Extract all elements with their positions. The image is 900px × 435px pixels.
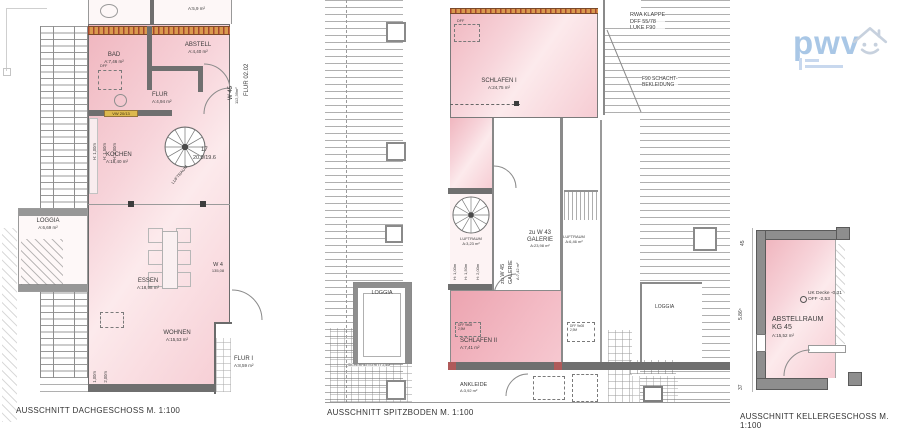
room-label-schlafen1: SCHLAFEN I A:24,75 m²: [474, 78, 524, 91]
room-name: LOGGIA: [36, 218, 59, 224]
wall-bottom: [88, 384, 216, 392]
room-area: A:8,59 m²: [234, 363, 254, 368]
room-label-flur: FLUR A:4,94 m²: [152, 92, 172, 105]
dff-dashed: [454, 24, 480, 42]
dim-line: [752, 228, 753, 392]
door-arc: [506, 374, 528, 396]
rwa-line: DFF 55/78: [630, 19, 656, 25]
luftraum-area: A:3,23 m²: [452, 242, 490, 247]
height-dim: H: 2,00m: [112, 126, 117, 160]
keller-column: [848, 372, 862, 386]
stair-dimension: 20.0/19.6: [193, 155, 216, 162]
chair: [148, 250, 163, 265]
room-area: A:24,75 m²: [474, 85, 524, 90]
room-label-loggia-mid: LOGGIA: [356, 290, 408, 297]
dff-box-tag: DFF 9x08 2,9M: [458, 324, 472, 332]
gal43-line: zu W 43: [529, 230, 551, 236]
spiral-stair: [452, 196, 490, 234]
gal43-area: A:23,98 m²: [520, 244, 560, 249]
insulated-wall-band: [88, 26, 230, 35]
keller-wall-top: [756, 230, 844, 240]
room-label-wohnen: WOHNEN A:15,53 m²: [152, 330, 202, 343]
post: [128, 201, 134, 207]
room-label-loggia: LOGGIA A:6,69 m²: [24, 218, 72, 231]
chair: [176, 228, 191, 243]
room-area: A:4,40 m²: [176, 49, 220, 54]
door-arc: [232, 290, 262, 320]
caption-kellergeschoss: AUSSCHNITT KELLERGESCHOSS M. 1:100: [740, 412, 900, 430]
height-dim: H: 1,00m: [92, 354, 97, 388]
stair-number: 17: [201, 147, 208, 154]
room-label-flur1: FLUR I A:8,59 m²: [234, 356, 254, 369]
rwa-line: LUKE F90: [630, 25, 655, 31]
floorplan-sheet: A:5,9 m² BAD A:7,46 m² DFF ABSTELL A:4,4…: [0, 0, 900, 435]
room-name: ESSEN: [138, 278, 158, 284]
wall: [198, 66, 203, 92]
wall-bad-flur: [147, 26, 152, 90]
rwa-line: RWA KLAPPE: [630, 12, 665, 18]
wall-band-top: [450, 8, 598, 14]
luftraum-area: A:6,46 m²: [558, 240, 590, 245]
shower-dashed: [98, 70, 122, 90]
off-level: OFF -2,53: [808, 297, 830, 302]
wall-accent: [448, 362, 456, 370]
loggia-wall: [19, 209, 87, 216]
wardrobe-dashed: [572, 374, 598, 402]
room-area: A:18,98 m²: [128, 285, 168, 290]
dim-label: 5.86⁵: [738, 296, 744, 320]
room-name: FLUR I: [234, 356, 253, 362]
height-dim: H: 2,00m: [103, 354, 108, 388]
post: [514, 101, 519, 106]
logo-tagline-line: [805, 65, 843, 68]
chair: [176, 272, 191, 287]
glass-line: [88, 204, 230, 205]
room-name: SCHLAFEN I: [481, 78, 516, 84]
post: [200, 201, 206, 207]
door-arc: [204, 88, 230, 114]
room-label-kochen: KOCHEN A:18,40 m²: [106, 152, 132, 165]
keller-wall-left: [756, 230, 766, 390]
dff-tag: DFF: [100, 64, 107, 69]
door-arc: [204, 64, 230, 90]
uk-decke: UK Decke -0,31: [808, 291, 842, 296]
room-area: A:6,69 m²: [24, 225, 72, 230]
height-dim: H: 1,00m: [92, 126, 97, 160]
room-area: A:18,40 m²: [106, 159, 132, 164]
flur1-hatch: [216, 338, 231, 392]
gal43-line: GALERIE: [527, 237, 553, 243]
skylight: [386, 22, 406, 42]
wall-line: [600, 120, 602, 366]
room-area: A:3,92 m²: [460, 389, 487, 394]
unit-area-w45: 112,39m²: [235, 52, 240, 104]
skylight: [386, 142, 406, 161]
loggia-inner: [363, 293, 401, 357]
dim-label: 37: [738, 374, 744, 390]
fixture-oval: [100, 4, 118, 18]
keller-wall-top-notch: [836, 227, 850, 240]
room-label-abstellraum: ABSTELLRAUM KG 45 A:15,52 m²: [772, 316, 823, 338]
keller-wall-bottom: [756, 378, 828, 390]
loggia-right-room: [640, 282, 702, 362]
height-dim: H: 1,00m: [453, 252, 458, 280]
wall-bottom-band: [448, 362, 730, 370]
edge-hatch-strip: [2, 228, 17, 422]
room-label-abstell: ABSTELL A:4,40 m²: [176, 42, 220, 55]
chair: [176, 250, 191, 265]
logo-tagline-bar: [799, 58, 802, 70]
ladder-rail: [53, 26, 54, 378]
room-area: A:15,52 m²: [772, 333, 823, 338]
gal45-label: zu W 45: [500, 228, 507, 284]
room-name: KOCHEN: [106, 152, 132, 158]
vw-badge: VW 20/13: [104, 110, 138, 117]
loggia-wall: [354, 283, 411, 288]
room-area: A:4,94 m²: [152, 99, 172, 104]
room-name: ABSTELLRAUM: [772, 316, 823, 323]
terrace-square: [643, 386, 663, 402]
boundary-marker: [3, 68, 11, 76]
height-dim: H: 2,00m: [476, 252, 481, 280]
gal43-label: zu W 43 GALERIE A:23,98 m²: [520, 230, 560, 249]
room-name: FLUR: [152, 92, 168, 98]
room-area-top: A:5,9 m²: [188, 6, 205, 11]
luftraum1-label: LUFTRAUM A:3,23 m²: [452, 237, 490, 247]
room-name: ABSTELL: [185, 42, 211, 48]
room-label-essen: ESSEN A:18,98 m²: [128, 278, 168, 291]
caption-dachgeschoss: AUSSCHNITT DACHGESCHOSS M. 1:100: [16, 406, 180, 415]
caption-spitzboden: AUSSCHNITT SPITZBODEN M. 1:100: [327, 408, 474, 417]
door-arc: [784, 350, 810, 376]
dff-box-tag: DFF 9x08 2,9M: [570, 325, 584, 333]
door-arc: [494, 166, 516, 188]
stair-straight: [564, 190, 598, 220]
pwv-house-icon: [852, 26, 888, 60]
wall: [152, 66, 202, 71]
wall: [150, 0, 154, 26]
luftraum2-label: LUFTRAUM A:6,46 m²: [558, 235, 590, 245]
f90-line: BEKLEIDUNG: [642, 82, 674, 88]
keller-window-niche: [756, 334, 766, 352]
unit-label-w4: W 4 135,08: [206, 262, 230, 273]
unit-area: 135,08: [206, 269, 230, 274]
room-area: A:7,41 m²: [460, 345, 497, 350]
skylight: [693, 227, 717, 251]
keller-step: [808, 345, 846, 353]
dff-dashed: [100, 312, 124, 328]
room-name: BAD: [108, 52, 120, 58]
skylight: [386, 380, 406, 400]
level-note: UK Decke -0,31 OFF -2,53: [808, 291, 842, 303]
rwa-note: RWA KLAPPE DFF 55/78 LUKE F90: [630, 12, 665, 32]
dim-label: 45: [740, 230, 746, 246]
room-label-loggia-right: LOGGIA: [655, 304, 674, 310]
room-label-bad: BAD A:7,46 m²: [96, 52, 132, 65]
skylight: [385, 225, 403, 243]
room-area: A:15,53 m²: [152, 337, 202, 342]
room-name: SCHLAFEN II: [460, 338, 497, 344]
chair: [148, 228, 163, 243]
room-label-schlafen2: SCHLAFEN II A:7,41 m²: [460, 338, 497, 351]
dff-dashed: DFF 9x08 2,9M: [567, 322, 595, 342]
logo-tagline-line: [805, 59, 819, 62]
room-label-ankleide: ANKLEIDE A:3,92 m²: [460, 382, 487, 393]
plan2-bottom-line: [325, 402, 730, 403]
corridor-label: FLUR 02.02: [244, 44, 251, 96]
room-name: WOHNEN: [163, 330, 190, 336]
dff-dashed: DFF 9x08 2,9M: [455, 322, 481, 337]
wall-accent: [554, 362, 562, 370]
wardrobe-dashed: [533, 376, 565, 400]
gal45-label: GALERIE: [508, 230, 515, 284]
dff-height: 2,9M: [458, 327, 465, 331]
gallery-rail-dashed: [450, 104, 520, 105]
level-marker: [800, 296, 807, 303]
roof-ladder-band: [40, 26, 88, 378]
loggia-floor-hatch: [21, 239, 63, 285]
gallery-pink-upper: [450, 118, 492, 190]
dff-tag: DFF: [457, 19, 464, 24]
room-number: KG 45: [772, 324, 792, 331]
dff-height: 2,9M: [570, 328, 577, 332]
spiral-stair: [164, 126, 206, 168]
sink-circle: [114, 94, 127, 107]
pwv-logo-text: pwv: [793, 24, 860, 62]
loggia-wall: [19, 284, 87, 291]
ladder-rail: [74, 26, 75, 378]
f90-note: F90 SCHACHT- BEKLEIDUNG: [642, 76, 678, 88]
height-dim: H: 1,50m: [464, 252, 469, 280]
height-dim: H: 1,50m: [102, 126, 107, 160]
